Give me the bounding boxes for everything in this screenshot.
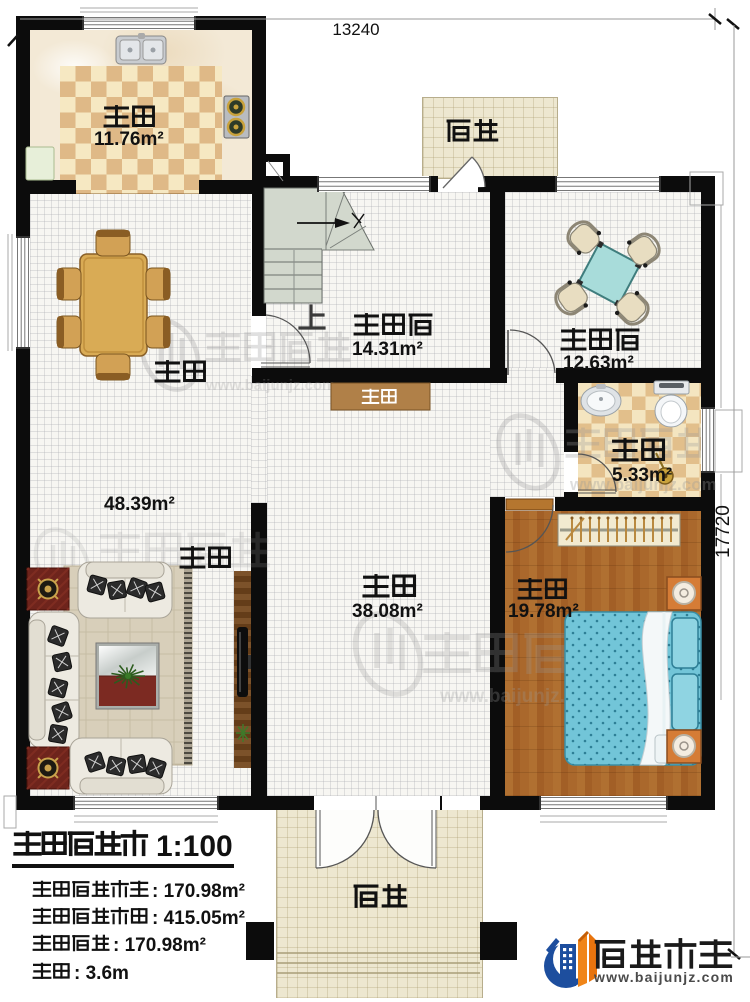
- svg-text:: 170.98m²: : 170.98m²: [152, 881, 245, 902]
- svg-text:www.baijunjz.com: www.baijunjz.com: [205, 377, 335, 394]
- svg-text:: 3.6m: : 3.6m: [74, 963, 129, 984]
- svg-text:5.33m²: 5.33m²: [612, 465, 672, 486]
- svg-text:14.31m²: 14.31m²: [352, 339, 423, 360]
- svg-text:19.78m²: 19.78m²: [508, 601, 579, 622]
- svg-text:www.baijunjz.com: www.baijunjz.com: [593, 969, 734, 985]
- svg-text:13240: 13240: [332, 20, 379, 39]
- svg-text:: 170.98m²: : 170.98m²: [113, 935, 206, 956]
- svg-text:: 415.05m²: : 415.05m²: [152, 908, 245, 929]
- svg-text:12.63m²: 12.63m²: [563, 353, 634, 374]
- svg-text:1:100: 1:100: [156, 830, 233, 863]
- svg-text:48.39m²: 48.39m²: [104, 494, 175, 515]
- svg-text:38.08m²: 38.08m²: [352, 601, 423, 622]
- svg-text:17720: 17720: [713, 505, 734, 558]
- svg-text:11.76m²: 11.76m²: [94, 129, 164, 150]
